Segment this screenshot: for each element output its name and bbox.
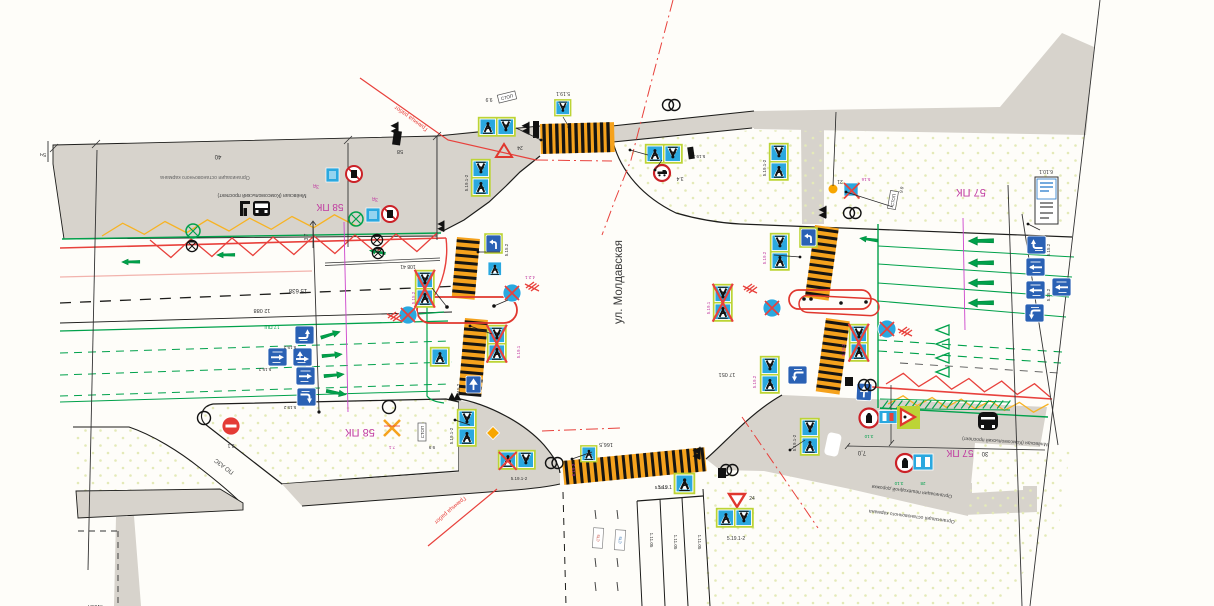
svg-text:5.15.2: 5.15.2 bbox=[258, 367, 271, 372]
svg-text:5.19.1-2: 5.19.1-2 bbox=[511, 476, 528, 481]
svg-text:1.11.05: 1.11.05 bbox=[673, 535, 678, 550]
svg-text:7.1: 7.1 bbox=[388, 445, 395, 450]
svg-text:21: 21 bbox=[837, 178, 843, 184]
svg-text:5.19.1: 5.19.1 bbox=[841, 343, 846, 356]
svg-text:5.19.2: 5.19.2 bbox=[571, 463, 576, 476]
svg-text:5.15.2: 5.15.2 bbox=[1046, 243, 1051, 256]
svg-text:5.19.2: 5.19.2 bbox=[752, 375, 757, 388]
svg-text:30: 30 bbox=[981, 450, 988, 456]
svg-text:5.19.1-2: 5.19.1-2 bbox=[762, 159, 767, 176]
svg-text:5.19.1: 5.19.1 bbox=[516, 345, 521, 358]
svg-text:5ч: 5ч bbox=[40, 151, 46, 157]
svg-text:57 ПК: 57 ПК bbox=[956, 186, 986, 198]
svg-text:5.19.1-2: 5.19.1-2 bbox=[449, 427, 454, 444]
svg-text:Мнёвская (Комсомольский проспе: Мнёвская (Комсомольский проспект) bbox=[217, 192, 306, 199]
svg-text:ул. Молдавская: ул. Молдавская bbox=[613, 240, 625, 324]
svg-text:24: 24 bbox=[517, 144, 523, 150]
svg-text:5.15.2: 5.15.2 bbox=[1046, 288, 1051, 301]
svg-text:5.19.1-2: 5.19.1-2 bbox=[464, 174, 469, 191]
svg-text:40: 40 bbox=[214, 153, 221, 159]
svg-text:5.19.2: 5.19.2 bbox=[762, 251, 767, 264]
svg-text:5.19.1-2: 5.19.1-2 bbox=[792, 434, 797, 451]
svg-text:5.15.2: 5.15.2 bbox=[283, 405, 296, 410]
svg-text:3.10: 3.10 bbox=[894, 481, 903, 486]
svg-text:17 051: 17 051 bbox=[719, 371, 736, 377]
svg-text:СТ5: СТ5 bbox=[618, 536, 622, 543]
svg-text:17 ПШ: 17 ПШ bbox=[264, 323, 280, 329]
svg-text:5.19.1-2: 5.19.1-2 bbox=[727, 536, 746, 542]
svg-text:5.19.1: 5.19.1 bbox=[655, 485, 668, 490]
svg-text:3д: 3д bbox=[372, 196, 378, 202]
svg-text:12 088: 12 088 bbox=[254, 307, 271, 313]
svg-text:Организация остановочного карм: Организация остановочного кармана bbox=[160, 174, 250, 180]
svg-text:24: 24 bbox=[749, 496, 755, 502]
svg-text:58: 58 bbox=[397, 148, 403, 154]
svg-text:28: 28 bbox=[920, 481, 926, 486]
svg-text:5.15.2: 5.15.2 bbox=[411, 291, 416, 304]
svg-text:58 ПК: 58 ПК bbox=[345, 426, 375, 438]
svg-text:108 41: 108 41 bbox=[400, 263, 416, 269]
svg-text:3.1: 3.1 bbox=[227, 442, 234, 448]
svg-text:5.16: 5.16 bbox=[861, 177, 870, 182]
svg-text:5.15.2: 5.15.2 bbox=[283, 345, 296, 350]
svg-text:3д: 3д bbox=[313, 183, 319, 189]
svg-text:166,5: 166,5 bbox=[599, 441, 613, 447]
svg-text:9.9: 9.9 bbox=[485, 96, 492, 102]
svg-text:5.19.1: 5.19.1 bbox=[706, 301, 711, 314]
svg-text:7,0: 7,0 bbox=[857, 449, 866, 455]
svg-text:1.11.05: 1.11.05 bbox=[649, 533, 654, 548]
svg-text:1.11.05: 1.11.05 bbox=[697, 535, 702, 550]
svg-text:3.10: 3.10 bbox=[864, 434, 873, 439]
svg-text:5.19.1: 5.19.1 bbox=[556, 90, 570, 96]
svg-text:4.2.1: 4.2.1 bbox=[525, 275, 536, 280]
svg-text:15 638: 15 638 bbox=[288, 287, 307, 293]
svg-text:9.9: 9.9 bbox=[428, 445, 435, 450]
svg-text:5.15.2: 5.15.2 bbox=[504, 243, 509, 256]
svg-text:58 ПК: 58 ПК bbox=[316, 201, 343, 212]
svg-text:3.4: 3.4 bbox=[676, 175, 683, 181]
svg-text:3,7: 3,7 bbox=[304, 233, 310, 240]
svg-text:СТ5: СТ5 bbox=[596, 534, 600, 541]
svg-text:6.10.1: 6.10.1 bbox=[1039, 168, 1053, 174]
